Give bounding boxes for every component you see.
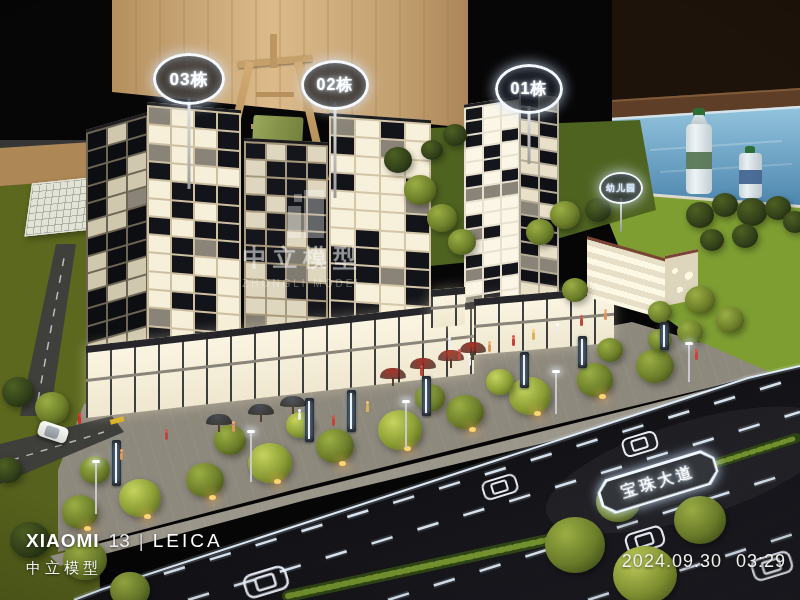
water-bottle [684,108,714,194]
studio-name: 中立模型 [26,559,223,578]
facility-sign-kindergarten: 幼儿园 [599,172,643,204]
camera-model: 13 [109,530,130,552]
camera-brand: XIAOMI [26,530,100,552]
dark-wall [612,0,800,104]
time: 03:29 [736,551,786,572]
car-roof [44,424,61,439]
green-cloth [250,115,303,180]
bottle-label [739,170,762,184]
building-sign-label: 03栋 [170,68,209,91]
scene-background [0,0,800,600]
ladder-rung [256,92,294,97]
building-sign-03: 03栋 [153,53,225,105]
building-sign-label: 02栋 [317,75,354,96]
divider: | [139,530,144,552]
sign-pole [334,102,337,198]
acrylic-grid-piece [24,175,109,236]
sign-pole [188,97,191,189]
bottle-label [686,152,712,169]
sign-pole [528,106,531,164]
building-sign-02: 02栋 [301,60,369,110]
building-sign-label: 01栋 [511,79,548,100]
camera-lens: LEICA [153,530,223,552]
date: 2024.09.30 [622,551,722,572]
photo-architectural-model: 03栋 02栋 01栋 幼儿园 宝珠大道 中立模型 ZHONGLI MODEL … [0,0,800,600]
building-sign-01: 01栋 [495,64,563,114]
ladder-post [270,34,277,68]
timestamp: 2024.09.30 03:29 [622,551,786,572]
facility-sign-label: 幼儿园 [606,182,636,195]
bottle-cap [693,108,705,116]
bottle-cap [745,146,755,153]
camera-watermark: XIAOMI 13 | LEICA 中立模型 [26,530,223,578]
water-bottle [738,146,763,198]
